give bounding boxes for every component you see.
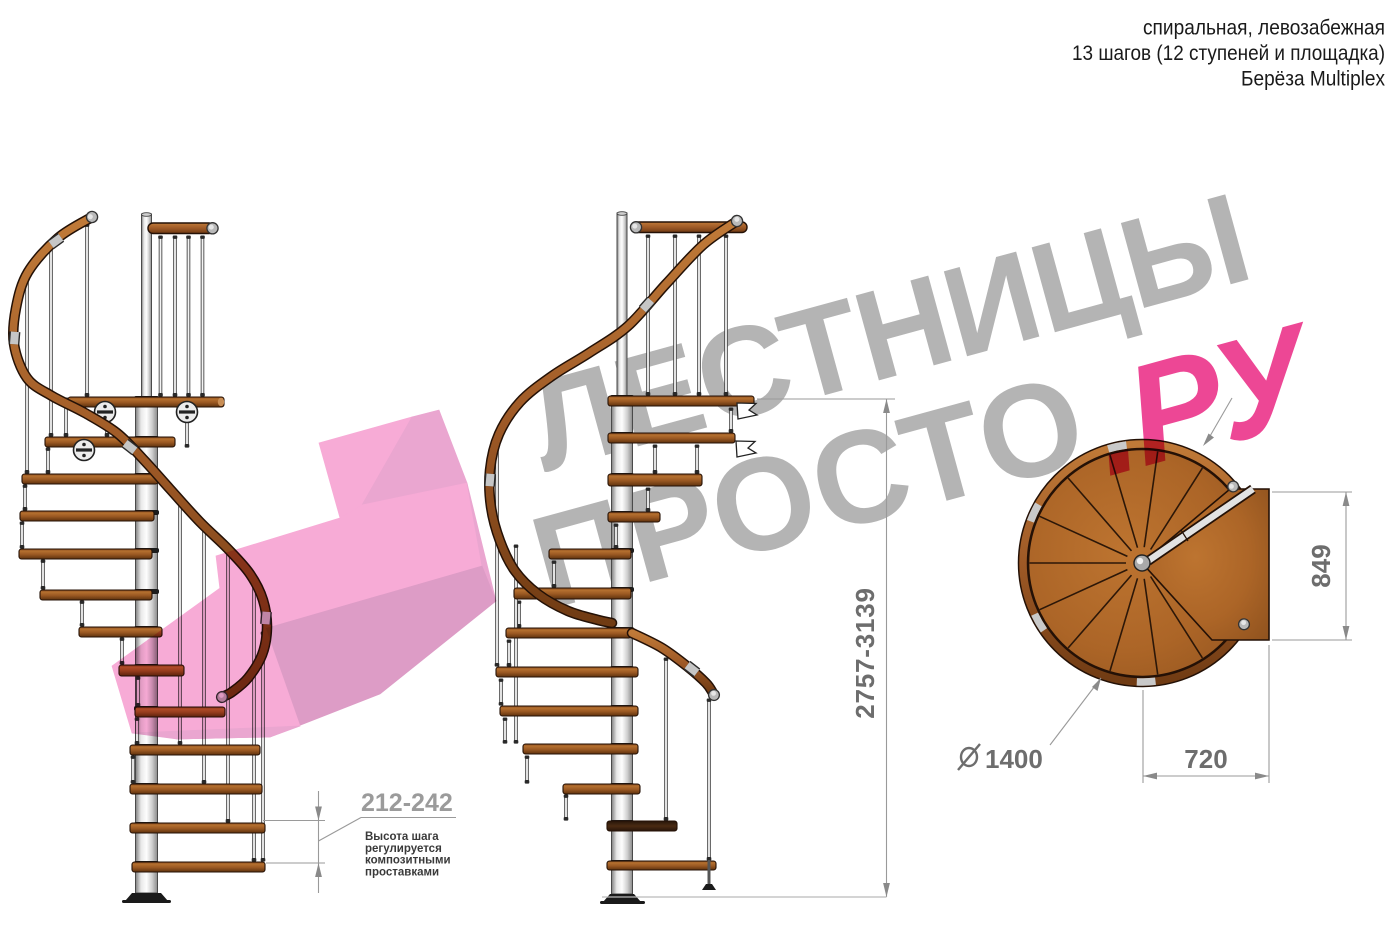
svg-text:13 шагов (12 ступеней и площад: 13 шагов (12 ступеней и площадка) bbox=[1072, 42, 1385, 65]
svg-text:спиральная, левозабежная: спиральная, левозабежная bbox=[1143, 17, 1385, 40]
svg-text:720: 720 bbox=[1184, 744, 1227, 774]
svg-text:849: 849 bbox=[1306, 544, 1336, 587]
svg-text:2757-3139: 2757-3139 bbox=[850, 587, 880, 719]
svg-text:Высота шагарегулируетсякомпози: Высота шагарегулируетсякомпозитнымипрост… bbox=[365, 831, 451, 878]
svg-text:Берёза Multiplex: Берёза Multiplex bbox=[1241, 68, 1385, 91]
svg-text:1400: 1400 bbox=[985, 744, 1043, 774]
svg-text:212-242: 212-242 bbox=[361, 789, 453, 817]
